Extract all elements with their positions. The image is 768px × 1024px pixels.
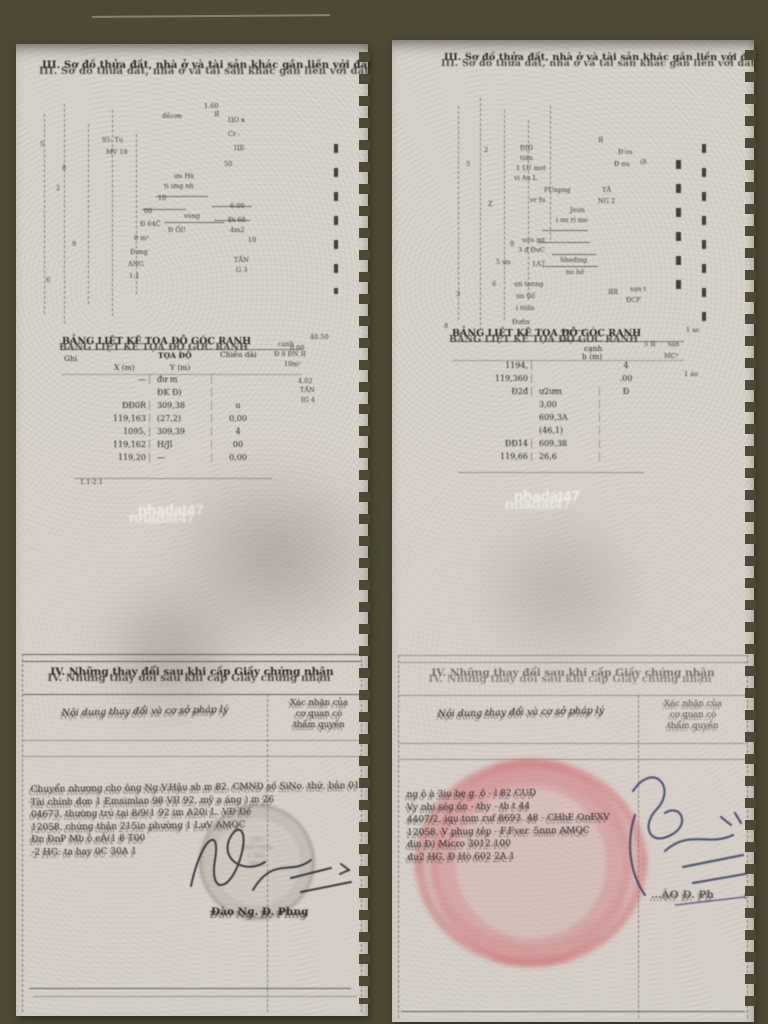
plan-dash-line: [504, 110, 505, 320]
left-changes-section: IV. Những thay đổi sau khi cấp Giấy chứn…: [22, 654, 362, 1012]
cell-y: đư m: [152, 375, 212, 384]
plan-annotation: đềcơn: [162, 112, 182, 120]
cell-x: 119,163: [86, 414, 150, 423]
plan-annotation: 4m2: [230, 226, 244, 234]
plan-annotation: no hề: [566, 268, 584, 276]
plan-annotation: NG 2: [598, 197, 615, 205]
changes-title: IV. Những thay đổi sau khi cấp Giấy chứn…: [23, 666, 361, 678]
cell-y: (27,2): [152, 414, 212, 423]
cell-b: ư2ưm: [534, 387, 600, 396]
col-right-line: thẩm quyền: [273, 720, 362, 731]
plan-annotation: ĐỊD: [520, 144, 533, 152]
plan-dash-line: [480, 98, 481, 330]
plan-dash-line: [550, 106, 551, 240]
cell-x: ĐĐ0R: [86, 401, 150, 410]
cell-len: u: [214, 401, 262, 410]
table-row: ĐĐ14609,38: [452, 439, 684, 452]
plan-annotation: ĐCF: [626, 296, 641, 304]
plan-annotation: IG 4: [301, 396, 315, 404]
plan-annotation: MV 18: [106, 148, 128, 156]
coordinate-table-title: BẢNG LIỆT KÊ TỌA ĐỘ GÓC RANH: [62, 336, 302, 350]
col-right-line: Xác nhận của: [273, 698, 362, 709]
cell-b: (46,1): [534, 426, 600, 435]
plan-annotation: ЦО в: [228, 116, 245, 124]
changes-col-right-header: Xác nhận của cơ quan có thẩm quyền: [273, 698, 362, 731]
plan-tick-marks: [334, 144, 338, 294]
plan-annotation: G 3: [236, 266, 247, 274]
plan-annotation: Đ nu: [614, 160, 630, 168]
plan-annotation: 5: [40, 140, 44, 148]
left-coordinate-table: BẢNG LIỆT KÊ TỌA ĐỘ GÓC RANH Ghi TỌA ĐỘ …: [62, 336, 302, 466]
plan-annotation: PUnpng: [544, 186, 570, 194]
photo-background: III. Sơ đồ thửa đất, nhà ở và tài sản kh…: [0, 0, 768, 1024]
plan-annotation: (8: [640, 158, 647, 166]
plan-annotation: 5 ưu: [496, 258, 511, 266]
watermark-text: nhadat47: [129, 510, 195, 527]
background-edge-highlight: [92, 14, 330, 18]
plan-dimension-line: [542, 266, 598, 267]
table-row: 119,163(27,2)0,00: [62, 414, 302, 427]
signer-name-partial: …ÀO D. Ph: [651, 889, 714, 901]
plan-annotation: un tiế: [516, 292, 535, 300]
plan-dimension-line: [538, 242, 590, 243]
cell-a: ĐĐ14: [462, 439, 532, 448]
cell-y: 309,38: [152, 401, 212, 410]
col-header-length: Chiều dài: [220, 351, 264, 359]
cell-c: 4: [600, 361, 652, 370]
coordinate-table-rows: —đư m ĐK Đ) ĐĐ0R309,38u 119,163(27,2)0,0…: [62, 375, 302, 466]
divider-line: [23, 756, 361, 757]
cell-x: 1095,: [86, 427, 150, 436]
plan-annotation: 6: [46, 276, 50, 284]
plan-annotation: 1A7: [532, 260, 545, 268]
table-row: 1194,4: [452, 361, 684, 374]
plan-dash-line: [88, 124, 89, 304]
coordinate-table-header: Ghi TỌA ĐỘ Chiều dài X (m) Y (m): [62, 350, 302, 375]
cell-len: 00: [214, 440, 262, 449]
table-bottom-line: [458, 472, 644, 473]
plan-annotation: 10: [248, 236, 256, 244]
divider-line: [399, 695, 747, 696]
changes-col-right-header: Xác nhận của cơ quan có thẩm quyền: [645, 699, 741, 732]
plan-tick-marks: [676, 160, 681, 292]
coordinate-table-rows: 1194,4 119,360.00 Đ2đư2ưmĐ 3,00 609,3A (…: [452, 361, 684, 465]
grey-stamp: J bIG AAM NiĐ]a o: KIIL MX gi: [199, 804, 315, 920]
signer-name: Đào Ng. D. Phng: [211, 906, 308, 918]
table-row: 609,3A: [452, 413, 684, 426]
plan-annotation: ti ưng nh: [164, 182, 194, 190]
col-right-line: cơ quan có: [645, 710, 741, 721]
col-header-ghi: Ghi: [64, 354, 77, 363]
plan-annotation: ЦБ: [234, 144, 244, 152]
col-right-line: Xác nhận của: [645, 699, 741, 710]
divider-line: [399, 662, 747, 663]
plan-annotation: 9: [72, 240, 76, 248]
col-header-hm: h (m): [582, 352, 602, 361]
cell-len: 4: [214, 427, 262, 436]
divider-line: [23, 654, 361, 655]
plan-annotation: ưu Hà: [174, 172, 194, 180]
plan-annotation: 95: Tu: [102, 136, 123, 144]
right-page: III. Sơ đồ thửa đất, nhà ở và tài sản kh…: [392, 40, 754, 1022]
cell-b: 26,6: [534, 452, 600, 461]
changes-title: IV. Những thay đổi sau khi cấp Giấy chứn…: [399, 667, 747, 679]
plan-annotation: 6: [492, 280, 496, 288]
plan-annotation: Đ'os: [618, 148, 632, 156]
plan-annotation: 10: [158, 194, 166, 202]
plan-annotation: 3: [456, 290, 460, 298]
plan-annotation: 40.50: [310, 333, 329, 341]
plan-annotation: Đưng: [130, 248, 148, 256]
bottom-line: [33, 996, 357, 997]
cell-c: .00: [600, 374, 652, 383]
bottom-line: [29, 988, 351, 989]
cell-a: Đ2đ: [462, 387, 532, 396]
divider-line: [399, 743, 747, 744]
cell-y: ĐK Đ): [152, 388, 212, 397]
plan-annotation: Sheding: [560, 256, 587, 264]
divider-line: [399, 655, 747, 656]
plan-annotation: sạn t: [630, 285, 646, 293]
left-page: III. Sơ đồ thửa đất, nhà ở và tài sản kh…: [16, 44, 368, 1016]
right-page-content: III. Sơ đồ thửa đất, nhà ở và tài sản kh…: [392, 40, 754, 1022]
plan-annotation: TẦ: [602, 186, 611, 194]
plan-tick-marks: [702, 144, 706, 330]
cell-len: 0,00: [214, 414, 262, 423]
table-row: ĐĐ0R309,38u: [62, 401, 302, 414]
plan-annotation: i ưu ri me: [556, 216, 588, 224]
cell-b: 609,38: [534, 439, 600, 448]
cell-a: 119,66: [462, 452, 532, 461]
plan-annotation: 9: [510, 240, 514, 248]
plan-annotation: 50: [224, 160, 232, 168]
table-row: ĐK Đ): [62, 388, 302, 401]
cell-c: Đ: [600, 387, 652, 396]
left-page-edge-serration: [359, 52, 370, 1004]
plan-annotation: 1 áo: [684, 370, 698, 378]
table-row: 119,162H/Jl00: [62, 440, 302, 453]
stamp-text: J bIG AAM NiĐ]a o: KIIL MX gi: [215, 836, 299, 868]
left-page-content: III. Sơ đồ thửa đất, nhà ở và tài sản kh…: [16, 44, 368, 1016]
right-changes-section: IV. Những thay đổi sau khi cấp Giấy chứn…: [398, 655, 748, 1018]
watermark-text: nhadat47: [505, 496, 571, 513]
changes-body-text: ng ô à 3iu bę g. ô - l 82 CUD Vy nhi ség…: [407, 785, 740, 864]
plan-annotation: Я: [214, 110, 219, 118]
plan-annotation: 0 m²: [134, 234, 149, 242]
plan-dash-line: [136, 134, 137, 294]
col-right-line: thẩm quyền: [645, 721, 741, 732]
plan-annotation: 2: [484, 146, 488, 154]
plan-annotation: Z: [488, 200, 493, 208]
plan-annotation: ANG: [128, 260, 144, 268]
table-row: 119,6626,6: [452, 452, 684, 465]
plan-annotation: 6.00: [230, 202, 244, 210]
plan-annotation: Cr -: [228, 130, 240, 138]
plan-annotation: 5: [466, 160, 470, 168]
plan-annotation: 1 LU mst: [516, 164, 546, 172]
cell-b: 3,00: [534, 400, 600, 409]
plan-annotation: tiăn: [520, 154, 533, 162]
plan-annotation: 8: [444, 322, 448, 330]
plan-annotation: vr fu: [530, 196, 545, 204]
plan-dimension-line: [552, 254, 596, 255]
plan-dimension-line: [164, 222, 224, 223]
plan-annotation: uou mt: [522, 236, 545, 244]
cell-x: 119,162: [86, 440, 150, 449]
right-page-edge-serration: [745, 50, 756, 1015]
coordinate-table-title: BẢNG LIỆT KÊ TỌA ĐỘ GÓC RANH: [452, 328, 684, 342]
plan-annotation: vòng: [184, 212, 200, 220]
table-row: 119,360.00: [452, 374, 684, 387]
col-header-y: Y (m): [170, 363, 190, 372]
table-row: Đ2đư2ưmĐ: [452, 387, 684, 400]
divider-line: [399, 759, 747, 760]
table-row: (46,1): [452, 426, 684, 439]
cell-a: 119,360: [462, 374, 532, 383]
plan-annotation: 1.1-2.1: [80, 478, 103, 486]
col-header-toado: TỌA ĐỘ: [158, 351, 192, 360]
plan-annotation: Đưñn: [512, 318, 530, 326]
right-coordinate-table: BẢNG LIỆT KÊ TỌA ĐỘ GÓC RANH cạnh h (m) …: [452, 328, 684, 465]
table-row: 119,20—0,00: [62, 453, 302, 466]
table-row: 1095,309,394: [62, 427, 302, 440]
plan-annotation: Đ ỐI!: [168, 226, 186, 234]
plan-annotation: 1:1: [129, 272, 139, 280]
coordinate-table-header: cạnh h (m): [452, 342, 684, 361]
plan-annotation: 1 ac: [686, 326, 700, 334]
plan-annotation: Đi 68: [228, 216, 246, 224]
cell-b: 609,3A: [534, 413, 600, 422]
col-header-x: X (m): [114, 363, 135, 372]
changes-col-left-header: Nội dung thay đổi và cơ sở pháp lý: [47, 704, 243, 719]
plan-annotation: 8: [62, 164, 66, 172]
bottom-line: [401, 1011, 745, 1012]
plan-annotation: 1.60: [204, 102, 218, 110]
plan-annotation: Jeun: [570, 206, 585, 214]
cell-len: 0,00: [214, 453, 262, 462]
cell-a: 1194,: [462, 361, 532, 370]
cell-y: H/Jl: [152, 440, 212, 449]
col-right-line: cơ quan có: [273, 709, 362, 720]
plan-annotation: Я: [598, 136, 603, 144]
cell-x: —: [86, 375, 150, 384]
plan-annotation: un tanng: [514, 280, 543, 288]
table-bottom-line: [74, 478, 272, 479]
divider-line: [23, 661, 361, 662]
divider-line: [23, 740, 361, 741]
changes-col-left-header: Nội dung thay đổi và cơ sở pháp lý: [423, 705, 619, 720]
plan-annotation: TẦN: [234, 256, 249, 264]
plan-annotation: 00: [144, 207, 152, 215]
table-row: 3,00: [452, 400, 684, 413]
divider-line: [23, 694, 361, 695]
plan-dash-line: [458, 106, 459, 320]
table-row: —đư m: [62, 375, 302, 388]
plan-dimension-line: [542, 230, 588, 231]
plan-annotation: vi Au L: [514, 174, 537, 182]
plan-annotation: TẦN: [300, 386, 315, 394]
cell-x: 119,20: [86, 453, 150, 462]
plan-annotation: 2: [56, 184, 60, 192]
plan-annotation: i tiišn: [516, 304, 534, 312]
plan-annotation: 3 đ ĐưC: [518, 246, 545, 254]
plan-annotation: ЯR: [608, 288, 618, 296]
plan-dash-line: [64, 104, 65, 324]
plan-dash-line: [44, 114, 45, 314]
plan-annotation: Đ 64Č: [140, 220, 161, 228]
cell-y: 309,39: [152, 427, 212, 436]
cell-y: —: [152, 453, 212, 462]
